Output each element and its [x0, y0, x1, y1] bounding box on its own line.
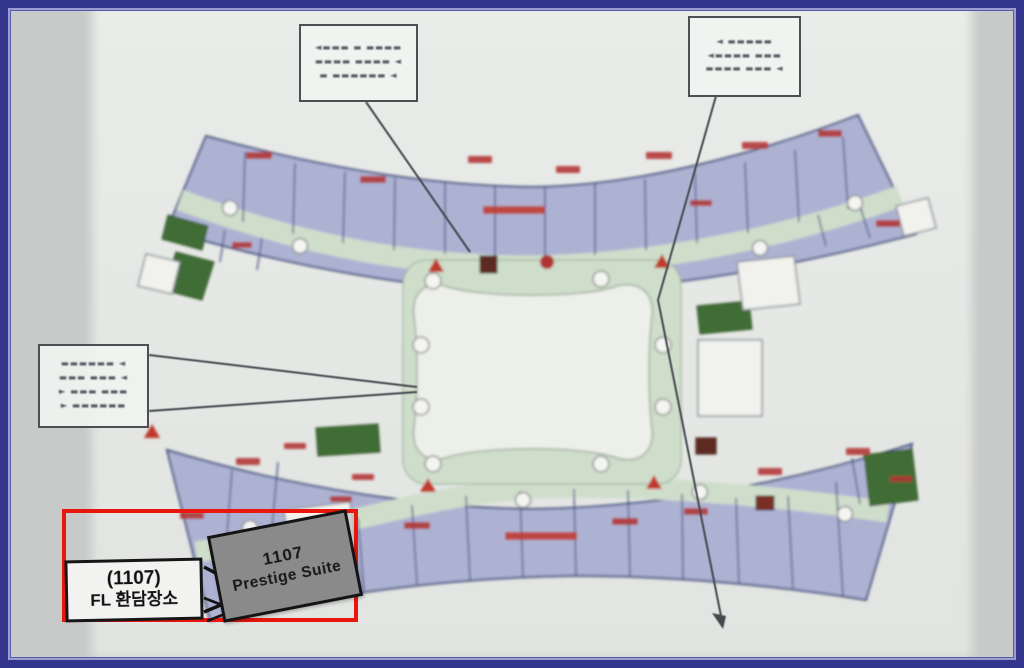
legend-line: ◄▬▬▬▬ ▬▬▬ [695, 52, 794, 62]
legend-line: ▬▬▬▬▬▬ ◄ [45, 360, 142, 370]
central-courtyard [403, 260, 681, 484]
legend-line: ▬▬▬▬ ▬▬▬▬ ◄ [306, 58, 411, 68]
room-1107-callout-label: (1107) FL 환담장소 [64, 558, 203, 623]
legend-line: ► ▬▬▬ ▬▬▬ [45, 388, 142, 398]
room-number-text: (1107) [107, 569, 161, 591]
callout-top-right: ◄ ▬▬▬▬▬ ◄▬▬▬▬ ▬▬▬ ▬▬▬▬ ▬▬▬ ◄ [688, 16, 801, 97]
slide-canvas: ◄▬▬▬ ▬ ▬▬▬▬ ▬▬▬▬ ▬▬▬▬ ◄ ▬ ▬▬▬▬▬▬ ◄ ◄ ▬▬▬… [0, 0, 1024, 668]
leader-arrowhead [712, 613, 726, 629]
atrium-void [414, 285, 653, 460]
room-purpose-text: FL 환담장소 [90, 589, 178, 611]
legend-line: ◄▬▬▬ ▬ ▬▬▬▬ [306, 44, 411, 54]
leader-left [149, 355, 417, 411]
legend-line: ▬▬▬▬ ▬▬▬ ◄ [695, 65, 794, 75]
legend-line: ► ▬▬▬▬▬▬ [45, 402, 142, 412]
callout-left: ▬▬▬▬▬▬ ◄ ▬▬▬ ▬▬▬ ◄ ► ▬▬▬ ▬▬▬ ► ▬▬▬▬▬▬ [38, 344, 149, 428]
legend-line: ◄ ▬▬▬▬▬ [695, 38, 794, 48]
callout-top-left: ◄▬▬▬ ▬ ▬▬▬▬ ▬▬▬▬ ▬▬▬▬ ◄ ▬ ▬▬▬▬▬▬ ◄ [299, 24, 418, 102]
legend-line: ▬▬▬ ▬▬▬ ◄ [45, 374, 142, 384]
legend-line: ▬ ▬▬▬▬▬▬ ◄ [306, 72, 411, 82]
